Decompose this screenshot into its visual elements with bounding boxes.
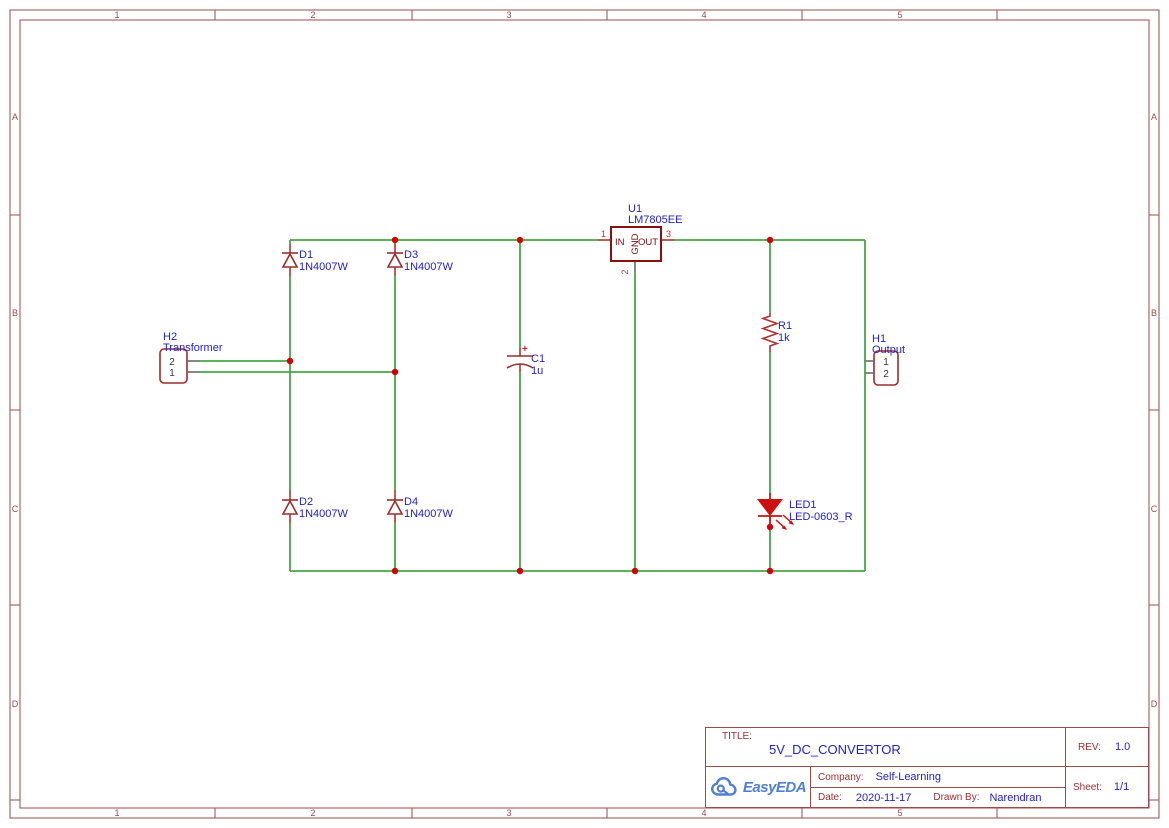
column-label-bottom: 3 [506,808,511,818]
component-value[interactable]: LM7805EE [628,214,682,226]
component-value[interactable]: 1k [778,332,790,344]
pin-number: 1 [169,368,175,379]
pin-number: 1 [601,229,606,239]
diode-triangle [283,254,297,267]
component-d3[interactable]: D3 1N4007W [387,244,454,276]
component-r1[interactable]: R1 1k [763,313,792,352]
frame-inner-border [20,20,1149,808]
pin-number: 3 [666,229,671,239]
component-ref[interactable]: R1 [778,320,792,332]
rev-value[interactable]: 1.0 [1115,741,1130,753]
junction-dot [287,358,293,364]
date-value[interactable]: 2020-11-17 [856,792,911,804]
junction-dot [392,369,398,375]
component-u1[interactable]: IN OUT GND 1 3 2 U1 LM7805EE [598,203,682,275]
component-ref[interactable]: D1 [299,249,313,261]
row-label-left: A [12,112,18,122]
column-label-bottom: 4 [701,808,706,818]
pin-number: 2 [620,269,630,274]
row-label-right: B [1151,308,1157,318]
component-ref[interactable]: D4 [404,496,418,508]
column-label-top: 5 [897,10,902,20]
title-cell: TITLE: 5V_DC_CONVERTOR [706,728,1066,767]
pin-name-gnd: GND [630,233,641,254]
drawn-by-value[interactable]: Narendran [989,792,1041,804]
rev-label: REV: [1078,742,1101,753]
component-value[interactable]: 1N4007W [299,508,349,520]
drawn-by-label: Drawn By: [933,792,979,803]
date-label: Date: [818,792,842,803]
component-d2[interactable]: D2 1N4007W [282,490,349,523]
junction-dot [632,568,638,574]
component-value[interactable]: 1N4007W [404,261,454,273]
component-value[interactable]: LED-0603_R [789,511,853,523]
easyeda-cloud-icon [710,776,740,798]
component-d1[interactable]: D1 1N4007W [282,244,349,276]
junction-dot [392,568,398,574]
junction-dot [767,237,773,243]
pin-number: 2 [169,357,175,368]
company-label: Company: [818,772,864,783]
row-label-right: C [1151,504,1158,514]
logo-cell: EasyEDA [706,767,811,807]
component-value[interactable]: 1u [531,365,543,377]
column-label-top: 1 [114,10,119,20]
component-value[interactable]: Output [872,344,905,356]
row-label-left: B [12,308,18,318]
company-cell: Company: Self-Learning [811,767,1066,788]
rev-cell: REV: 1.0 [1066,728,1148,767]
junction-dots [287,237,773,574]
row-label-right: D [1151,699,1158,709]
sheet-label: Sheet: [1073,782,1102,793]
column-label-bottom: 5 [897,808,902,818]
component-h2[interactable]: 2 1 H2 Transformer [160,331,223,383]
component-value[interactable]: 1N4007W [404,508,454,520]
company-value[interactable]: Self-Learning [876,771,941,783]
component-value[interactable]: Transformer [163,342,223,354]
sheet-value[interactable]: 1/1 [1114,781,1129,793]
title-label: TITLE: [722,731,752,742]
column-label-top: 4 [701,10,706,20]
component-ref[interactable]: LED1 [789,499,817,511]
sheet-cell: Sheet: 1/1 [1066,767,1148,807]
column-label-bottom: 1 [114,808,119,818]
polarity-plus-sign: + [522,344,528,355]
column-label-top: 3 [506,10,511,20]
diode-triangle [388,501,402,514]
schematic-svg: 1 2 3 4 5 1 2 3 4 5 A B C D A B C D [0,0,1169,828]
row-label-right: A [1151,112,1157,122]
easyeda-logo-text: EasyEDA [743,779,806,796]
component-value[interactable]: 1N4007W [299,261,349,273]
sheet-frame: 1 2 3 4 5 1 2 3 4 5 A B C D A B C D [10,10,1159,818]
component-ref[interactable]: C1 [531,353,545,365]
pin-name-in: IN [615,237,625,248]
row-label-left: C [12,504,19,514]
junction-dot [767,568,773,574]
junction-dot [392,237,398,243]
title-block: TITLE: 5V_DC_CONVERTOR REV: 1.0 EasyEDA … [705,727,1149,808]
led-triangle [757,499,783,516]
wires[interactable] [200,240,865,571]
component-h1[interactable]: 1 2 H1 Output [865,333,905,385]
date-cell: Date: 2020-11-17 Drawn By: Narendran [811,788,1066,807]
diode-triangle [283,501,297,514]
row-label-left: D [12,699,19,709]
column-label-bottom: 2 [310,808,315,818]
component-ref[interactable]: D2 [299,496,313,508]
schematic-canvas[interactable]: 1 2 3 4 5 1 2 3 4 5 A B C D A B C D [0,0,1169,828]
frame-outer-border [10,10,1159,818]
junction-dot [517,237,523,243]
pin-number: 2 [883,369,889,380]
resistor-zigzag [763,313,777,352]
component-ref[interactable]: D3 [404,249,418,261]
component-c1[interactable]: + C1 1u [507,344,545,377]
diode-triangle [388,254,402,267]
schematic-title[interactable]: 5V_DC_CONVERTOR [769,742,901,757]
component-d4[interactable]: D4 1N4007W [387,490,454,523]
column-label-top: 2 [310,10,315,20]
junction-dot [517,568,523,574]
pin-number: 1 [883,357,889,368]
